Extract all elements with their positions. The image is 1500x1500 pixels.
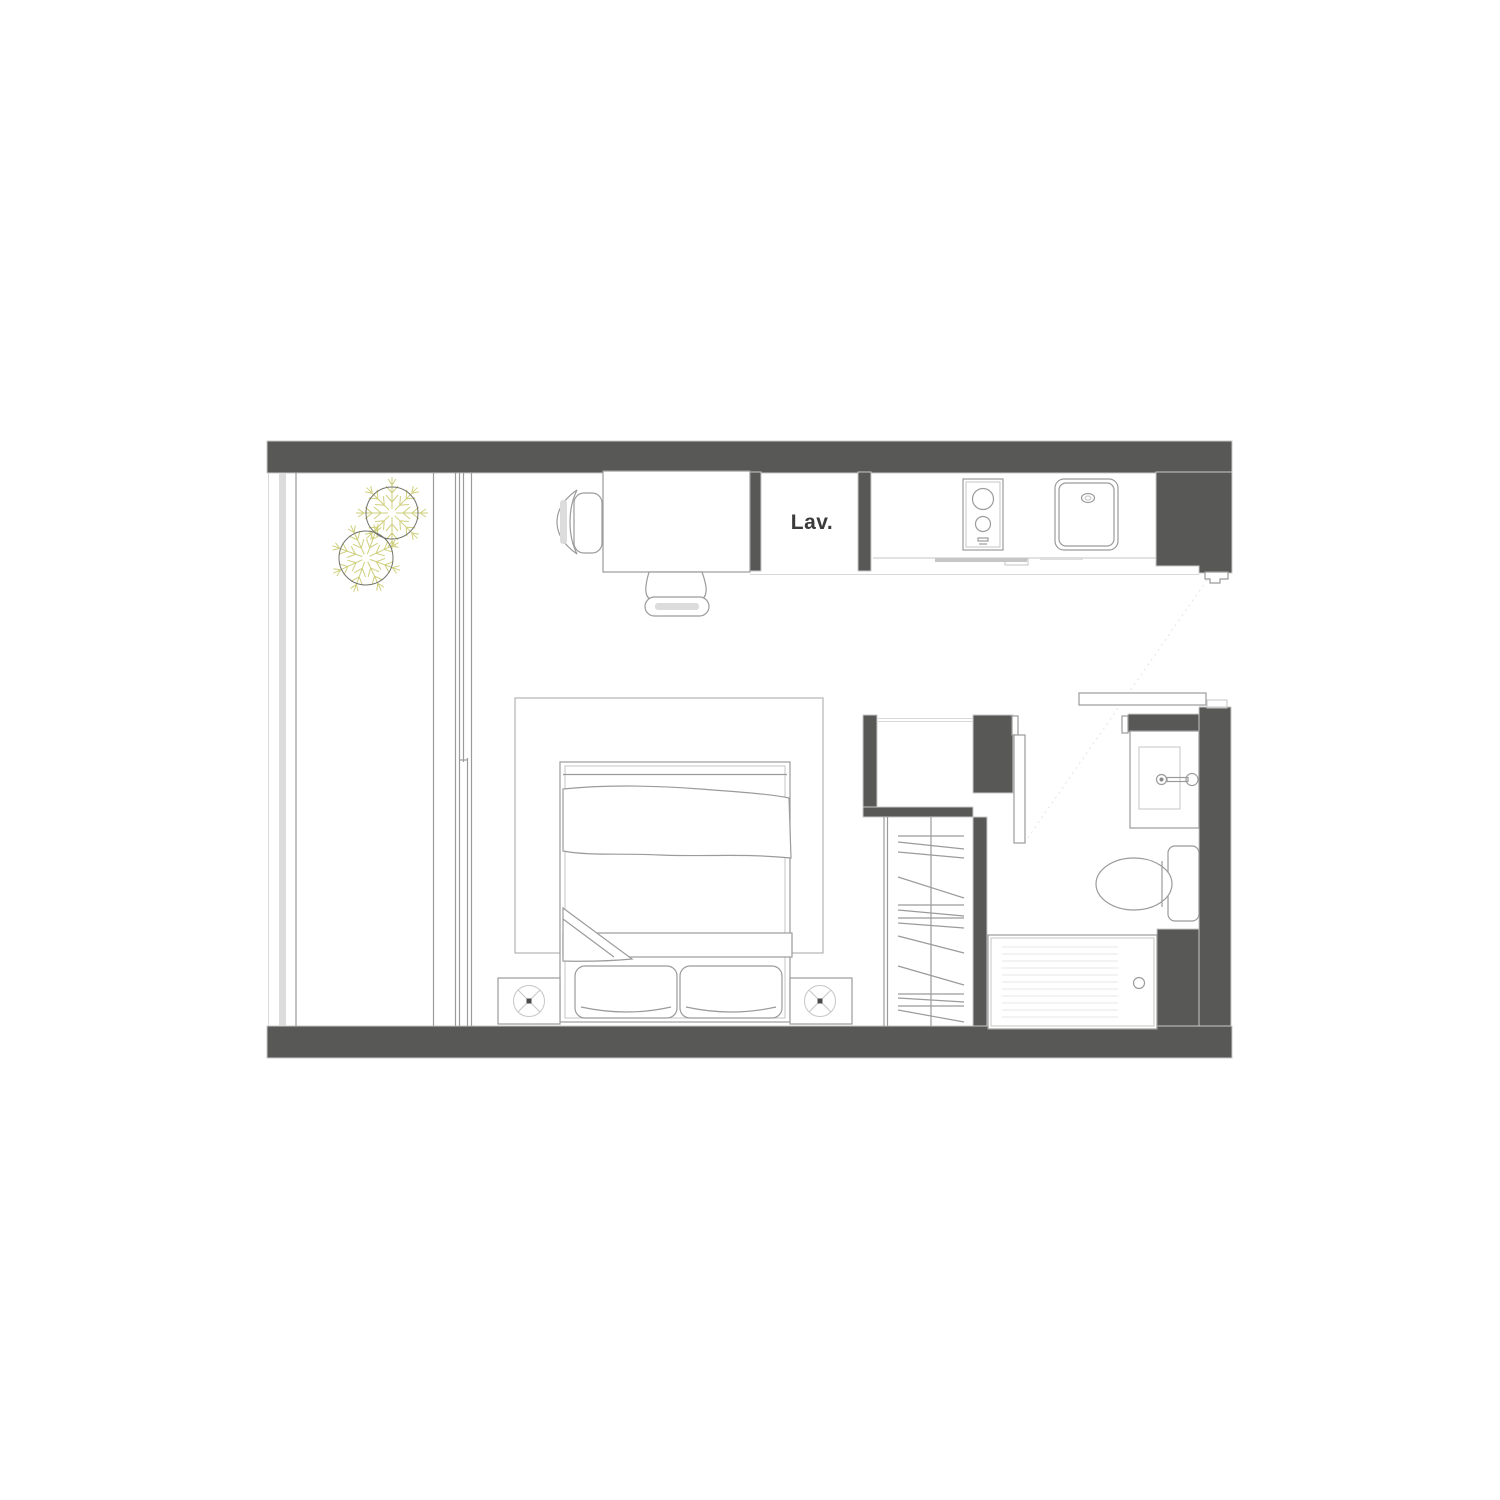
wall-wardrobe-right (973, 817, 987, 1026)
door-jamb-right (1122, 716, 1128, 733)
toilet-bowl (1096, 858, 1172, 910)
plant-leaves-top (356, 477, 428, 549)
balcony (269, 473, 472, 1026)
sink-icon (1055, 479, 1118, 550)
counter-edge-shade2 (1040, 557, 1083, 560)
plant-pot-bottom (339, 531, 393, 585)
bathroom-shelf (1079, 693, 1206, 705)
toilet-icon (1096, 846, 1199, 921)
wall-lav-pillar-right (858, 472, 871, 571)
nightstand-right (790, 978, 852, 1024)
duvet-fold (563, 786, 791, 858)
wardrobe (884, 817, 964, 1026)
bed (560, 762, 792, 1022)
desk-area (557, 471, 750, 616)
nightstand-left (498, 978, 560, 1024)
desk-chair-left (557, 490, 602, 554)
wall-closet-bottom (863, 807, 973, 817)
pillow-right (680, 966, 782, 1018)
vanity (1130, 731, 1199, 828)
bathroom-sliding-door (1014, 735, 1025, 843)
plant-leaves-bottom (330, 522, 402, 594)
floorplan-drawing: Lav. (0, 0, 1500, 1500)
wall-bathroom-top (1128, 714, 1199, 732)
wall-right (1199, 707, 1231, 1058)
door-jamb-left (1012, 716, 1018, 735)
plants-icon (330, 477, 428, 594)
bed-area (498, 698, 852, 1024)
wall-shower-right (1157, 929, 1199, 1029)
laundry-closet: Lav. (791, 511, 833, 534)
sliding-glass-door (456, 473, 472, 1026)
desk (603, 471, 750, 572)
wall-top (267, 441, 1232, 473)
pillow-left (575, 966, 677, 1018)
shower (988, 935, 1157, 1029)
balcony-railing (279, 473, 286, 1026)
cooktop-icon (963, 479, 1003, 550)
floorplan-canvas: Lav. (0, 0, 1500, 1500)
wall-bottom (267, 1026, 1232, 1058)
desk-chair-bottom (645, 572, 709, 616)
wall-closet-left (863, 715, 877, 817)
wall-closet-pillar (973, 715, 1013, 793)
wall-lav-pillar-left (750, 472, 761, 571)
toilet-tank (1168, 846, 1199, 921)
wall-cap-fixture (1205, 572, 1228, 583)
wall-kitchen-corner (1156, 472, 1232, 573)
lav-label: Lav. (791, 511, 833, 534)
entry-closet (878, 719, 973, 722)
